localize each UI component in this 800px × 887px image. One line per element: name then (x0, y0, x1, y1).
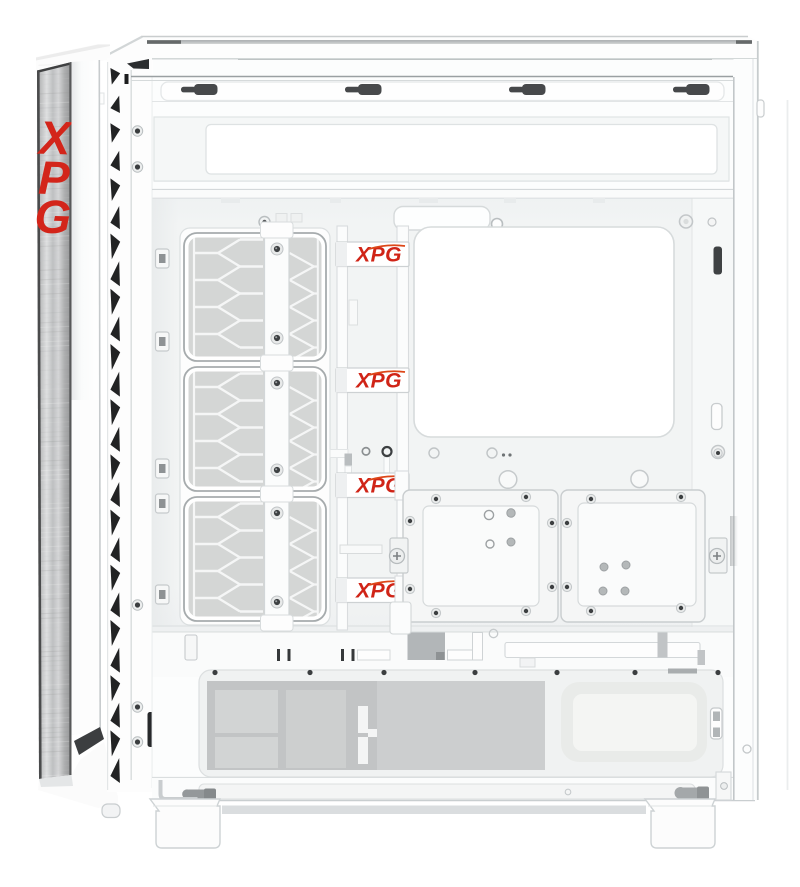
svg-text:G: G (34, 190, 72, 244)
